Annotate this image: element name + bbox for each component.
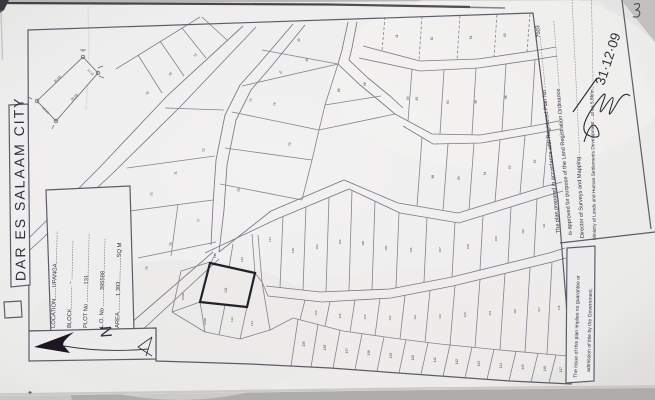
svg-text:66: 66 [337, 88, 341, 92]
svg-text:145: 145 [521, 364, 525, 370]
svg-text:140: 140 [411, 355, 415, 361]
svg-text:118: 118 [513, 309, 517, 314]
svg-text:78: 78 [237, 188, 241, 192]
svg-text:108: 108 [466, 244, 470, 249]
svg-text:107: 107 [438, 247, 442, 252]
svg-text:103: 103 [315, 244, 319, 249]
svg-text:138: 138 [367, 350, 371, 356]
svg-text:142: 142 [455, 359, 459, 365]
svg-text:131: 131 [224, 287, 228, 293]
svg-text:130: 130 [213, 253, 217, 258]
svg-text:132: 132 [230, 317, 234, 322]
svg-text:110: 110 [521, 229, 525, 234]
svg-text:115: 115 [557, 305, 561, 310]
svg-text:72: 72 [202, 148, 206, 152]
svg-text:92: 92 [533, 159, 537, 163]
svg-text:117: 117 [537, 307, 541, 312]
svg-text:106: 106 [409, 247, 413, 252]
svg-text:106: 106 [384, 245, 388, 250]
svg-text:70: 70 [288, 142, 292, 146]
svg-text:111: 111 [542, 223, 546, 228]
svg-text:41: 41 [395, 34, 399, 38]
svg-text:122: 122 [413, 314, 417, 319]
svg-text:71: 71 [174, 171, 178, 175]
svg-text:63: 63 [406, 96, 410, 100]
svg-text:47: 47 [279, 70, 283, 74]
svg-text:74: 74 [249, 98, 253, 102]
svg-text:105B: 105B [181, 293, 185, 300]
svg-text:136: 136 [323, 345, 327, 351]
svg-text:120: 120 [463, 312, 467, 317]
svg-text:127: 127 [268, 237, 272, 242]
svg-text:83: 83 [415, 97, 419, 101]
svg-text:61: 61 [469, 35, 473, 39]
svg-text:133: 133 [250, 321, 254, 326]
svg-text:143: 143 [477, 361, 481, 367]
svg-text:119: 119 [488, 310, 492, 315]
svg-text:75: 75 [145, 266, 149, 270]
svg-text:84: 84 [446, 100, 450, 104]
svg-text:88: 88 [431, 175, 435, 179]
svg-text:62: 62 [430, 37, 434, 41]
svg-text:77: 77 [197, 218, 201, 222]
svg-text:128: 128 [291, 248, 295, 253]
svg-text:105: 105 [361, 240, 365, 245]
svg-text:129: 129 [240, 257, 244, 262]
svg-text:109: 109 [494, 236, 498, 241]
svg-text:146: 146 [543, 366, 547, 372]
svg-text:124: 124 [363, 314, 367, 319]
svg-text:141: 141 [433, 357, 437, 363]
svg-text:121: 121 [438, 314, 442, 319]
svg-text:86: 86 [504, 95, 508, 99]
svg-text:126: 126 [314, 310, 318, 315]
svg-text:75: 75 [273, 102, 277, 106]
svg-text:85: 85 [474, 100, 478, 104]
svg-text:123: 123 [388, 315, 392, 320]
svg-text:139: 139 [389, 353, 393, 359]
svg-text:147: 147 [559, 367, 563, 373]
svg-text:125: 125 [338, 313, 342, 318]
svg-text:49: 49 [305, 58, 309, 62]
svg-text:58: 58 [363, 82, 367, 86]
svg-text:104: 104 [338, 239, 342, 244]
svg-text:135: 135 [302, 341, 306, 347]
svg-text:94: 94 [483, 171, 487, 175]
svg-text:N: N [98, 325, 116, 338]
svg-text:DAR ES SALAAM CITY: DAR ES SALAAM CITY [11, 96, 29, 281]
svg-text:73: 73 [150, 192, 154, 196]
svg-text:89: 89 [457, 176, 461, 180]
svg-text:144: 144 [499, 363, 503, 369]
svg-text:109B: 109B [203, 318, 207, 325]
svg-text:93: 93 [508, 165, 512, 169]
svg-text:43: 43 [297, 38, 301, 42]
svg-text:137: 137 [345, 348, 349, 354]
svg-text:76: 76 [169, 242, 173, 246]
svg-text:60: 60 [503, 33, 507, 37]
